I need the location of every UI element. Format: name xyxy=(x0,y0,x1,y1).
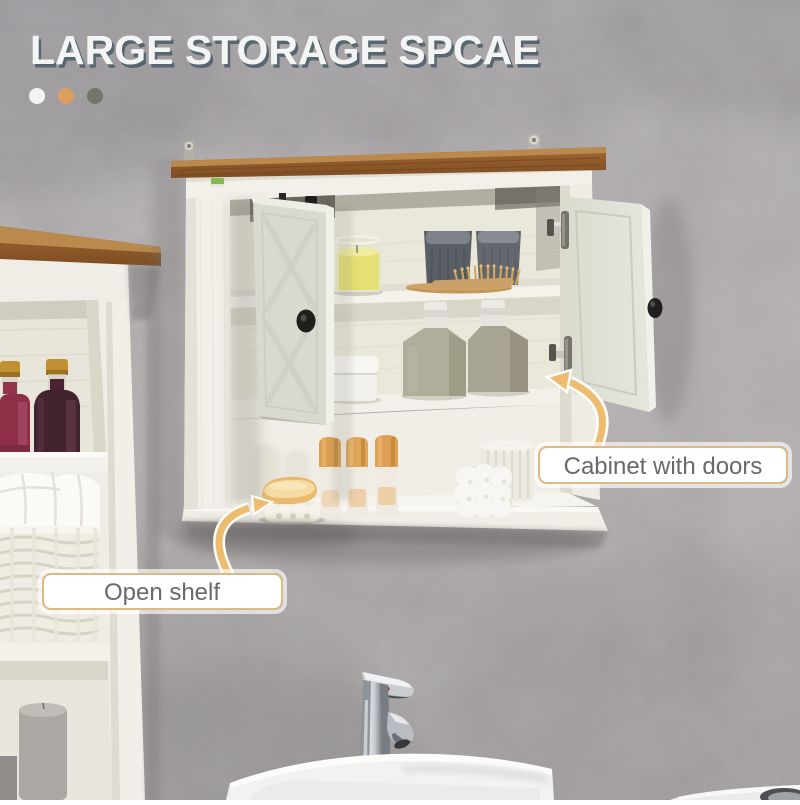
svg-text:Open shelf: Open shelf xyxy=(104,579,220,606)
svg-text:LARGE STORAGE SPCAE: LARGE STORAGE SPCAE xyxy=(30,27,540,73)
svg-text:Cabinet with doors: Cabinet with doors xyxy=(564,453,763,480)
